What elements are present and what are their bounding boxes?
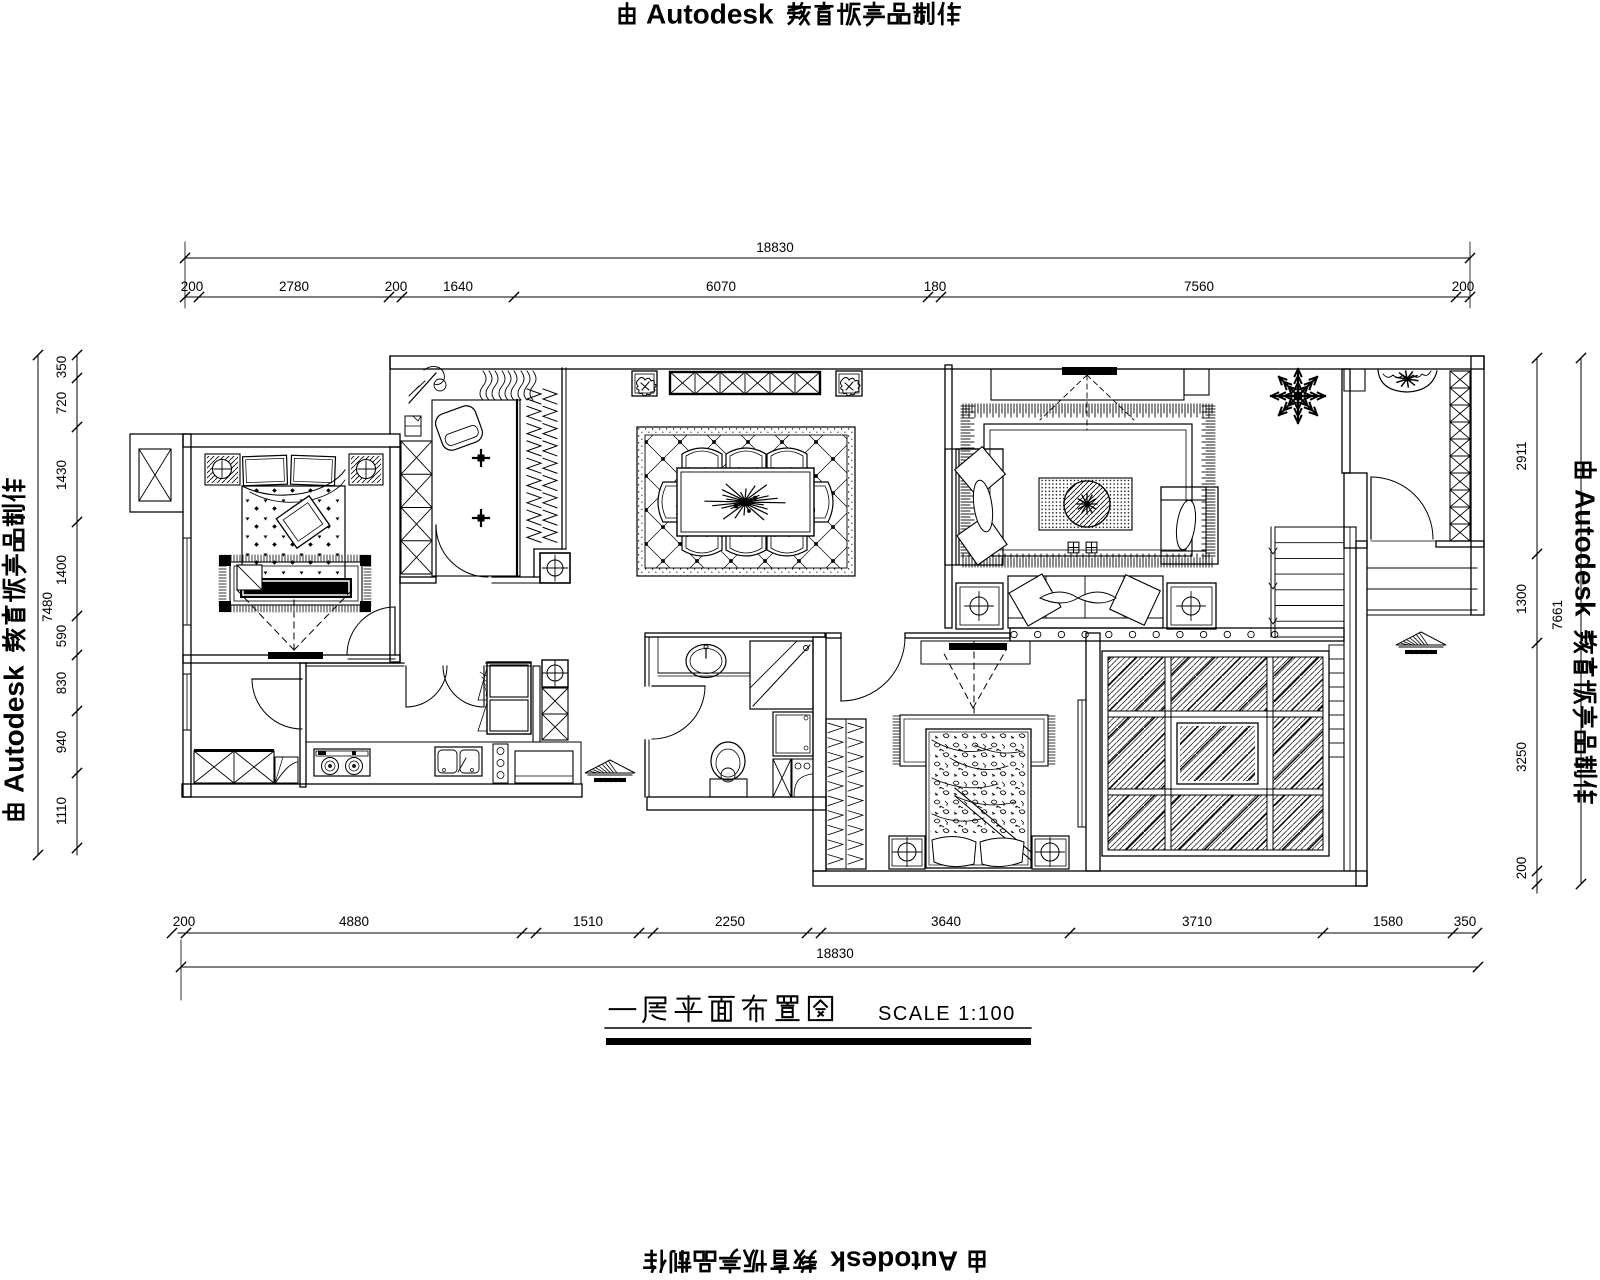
svg-text:18830: 18830	[816, 946, 854, 961]
svg-text:1510: 1510	[573, 914, 603, 929]
svg-text:200: 200	[385, 279, 408, 294]
svg-text:1300: 1300	[1514, 584, 1529, 614]
svg-text:Autodesk: Autodesk	[646, 0, 774, 30]
svg-text:720: 720	[54, 392, 69, 415]
svg-text:1110: 1110	[54, 797, 69, 825]
svg-text:200: 200	[181, 279, 204, 294]
svg-text:3640: 3640	[931, 914, 961, 929]
svg-text:18830: 18830	[756, 240, 794, 255]
svg-text:2780: 2780	[279, 279, 309, 294]
svg-text:Autodesk: Autodesk	[830, 1246, 958, 1277]
svg-text:1400: 1400	[54, 555, 69, 585]
svg-text:SCALE 1:100: SCALE 1:100	[878, 1003, 1016, 1025]
svg-text:350: 350	[54, 356, 69, 379]
svg-text:590: 590	[54, 625, 69, 648]
svg-text:Autodesk: Autodesk	[0, 665, 30, 793]
svg-text:7560: 7560	[1184, 279, 1214, 294]
svg-text:Autodesk: Autodesk	[1570, 489, 1600, 617]
svg-text:180: 180	[924, 279, 947, 294]
svg-text:4880: 4880	[339, 914, 369, 929]
svg-text:200: 200	[1452, 279, 1475, 294]
svg-text:6070: 6070	[706, 279, 736, 294]
svg-text:7480: 7480	[40, 592, 55, 622]
svg-text:2250: 2250	[715, 914, 745, 929]
svg-text:1580: 1580	[1373, 914, 1403, 929]
svg-text:830: 830	[54, 672, 69, 695]
svg-text:1640: 1640	[443, 279, 473, 294]
svg-text:7661: 7661	[1550, 600, 1565, 630]
svg-text:200: 200	[1514, 857, 1529, 880]
svg-text:3710: 3710	[1182, 914, 1212, 929]
svg-text:350: 350	[1454, 914, 1477, 929]
svg-text:2911: 2911	[1514, 441, 1529, 470]
svg-text:940: 940	[54, 731, 69, 754]
svg-text:200: 200	[173, 914, 196, 929]
svg-text:3250: 3250	[1514, 742, 1529, 772]
svg-text:1430: 1430	[54, 460, 69, 490]
